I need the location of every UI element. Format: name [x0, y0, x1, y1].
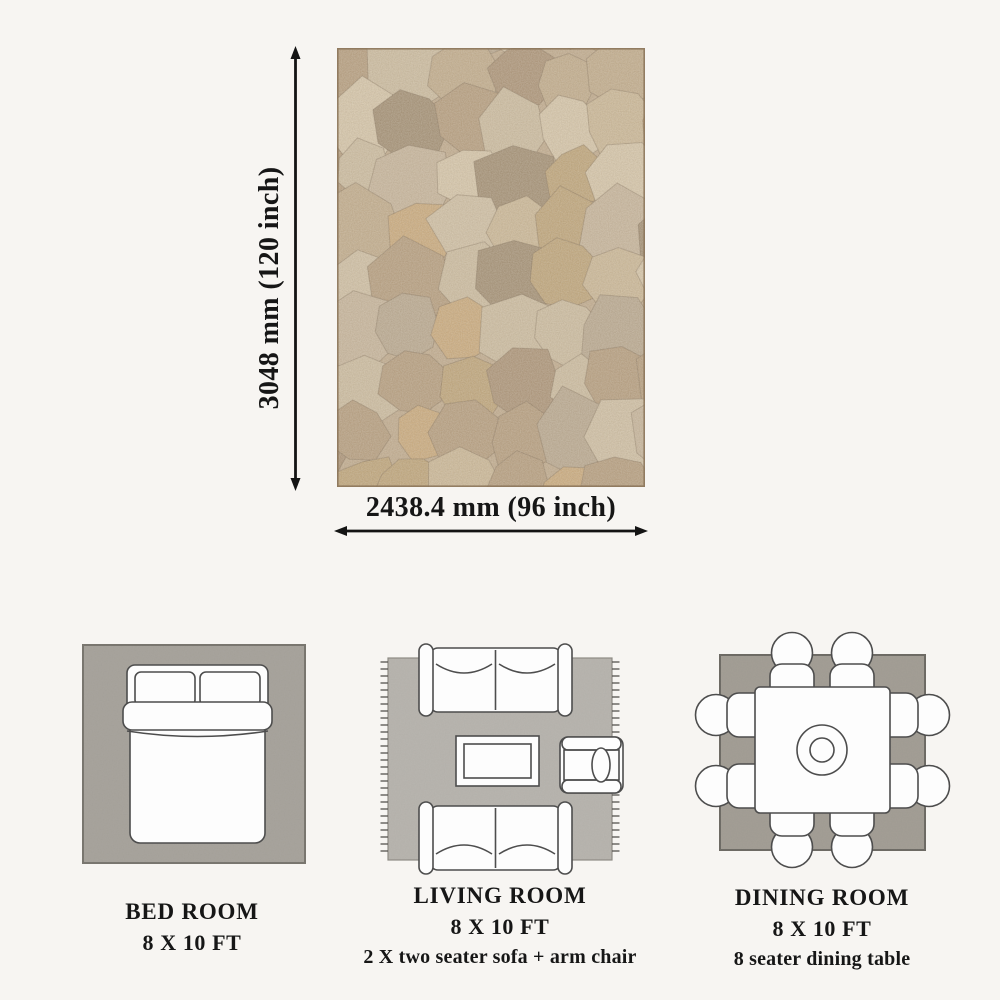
diningroom-note: 8 seater dining table — [660, 944, 984, 975]
rug-grain-light — [337, 48, 645, 487]
sofa-bottom-icon — [419, 802, 572, 874]
livingroom-caption: LIVING ROOM 8 X 10 FT 2 X two seater sof… — [330, 880, 670, 973]
livingroom-title: LIVING ROOM — [330, 880, 670, 911]
diningroom-title: DINING ROOM — [660, 882, 984, 913]
bedroom-title: BED ROOM — [32, 896, 352, 927]
height-dimension-label: 3048 mm (120 inch) — [254, 167, 286, 410]
height-dimension-arrow — [291, 46, 301, 491]
bedroom-size: 8 X 10 FT — [32, 927, 352, 958]
diningroom-diagram — [696, 633, 950, 868]
livingroom-note: 2 X two seater sofa + arm chair — [330, 942, 670, 973]
arm-chair-icon — [560, 737, 623, 793]
bed-icon — [123, 665, 272, 843]
bedroom-caption: BED ROOM 8 X 10 FT — [32, 896, 352, 958]
bedroom-diagram — [83, 645, 305, 863]
diningroom-size: 8 X 10 FT — [660, 913, 984, 944]
dining-table-icon — [755, 687, 890, 813]
livingroom-diagram — [381, 644, 624, 874]
livingroom-size: 8 X 10 FT — [330, 911, 670, 942]
width-dimension-arrow — [334, 526, 648, 536]
coffee-table-icon — [456, 736, 539, 786]
rug-size-guide-sheet: 3048 mm (120 inch) 2438.4 mm (96 inch) B… — [0, 0, 1000, 1000]
width-dimension-label: 2438.4 mm (96 inch) — [366, 492, 616, 524]
diningroom-caption: DINING ROOM 8 X 10 FT 8 seater dining ta… — [660, 882, 984, 975]
sofa-top-icon — [419, 644, 572, 716]
